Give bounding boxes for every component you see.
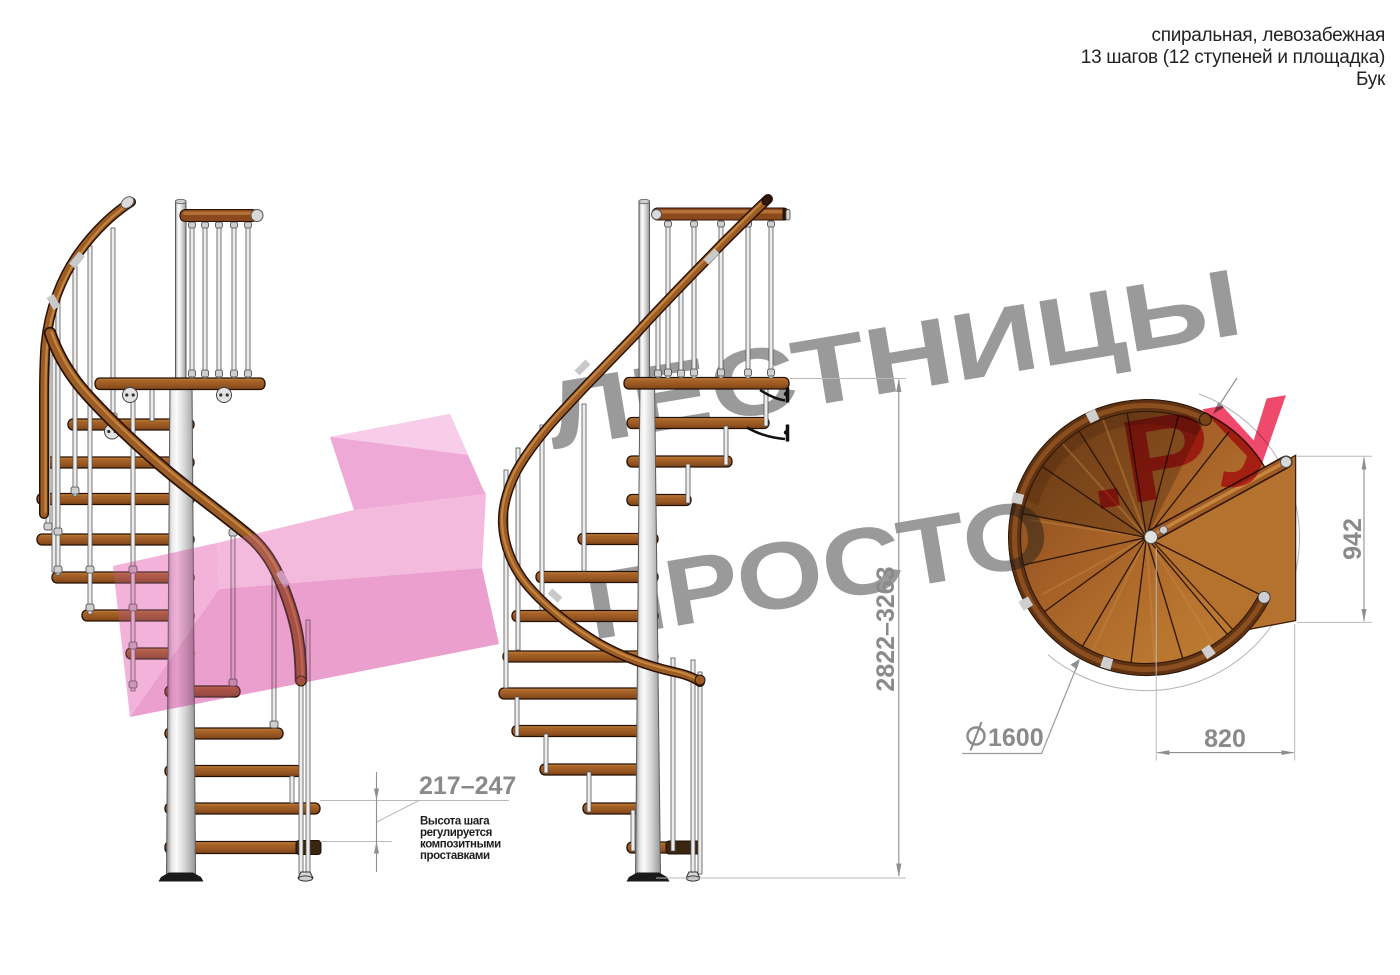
svg-text:Бук: Бук xyxy=(1356,69,1386,90)
svg-text:регулируется: регулируется xyxy=(420,827,492,839)
svg-text:Высота шага: Высота шага xyxy=(420,816,490,828)
svg-text:проставками: проставками xyxy=(420,850,490,862)
svg-text:217–247: 217–247 xyxy=(419,772,516,800)
svg-text:820: 820 xyxy=(1204,725,1246,753)
svg-text:2822–3263: 2822–3263 xyxy=(872,566,900,691)
svg-text:942: 942 xyxy=(1339,518,1367,560)
svg-text:спиральная, левозабежная: спиральная, левозабежная xyxy=(1152,25,1385,46)
svg-text:13 шагов (12 ступеней и площад: 13 шагов (12 ступеней и площадка) xyxy=(1081,47,1385,68)
svg-text:1600: 1600 xyxy=(988,724,1044,752)
svg-text:композитными: композитными xyxy=(420,839,501,851)
